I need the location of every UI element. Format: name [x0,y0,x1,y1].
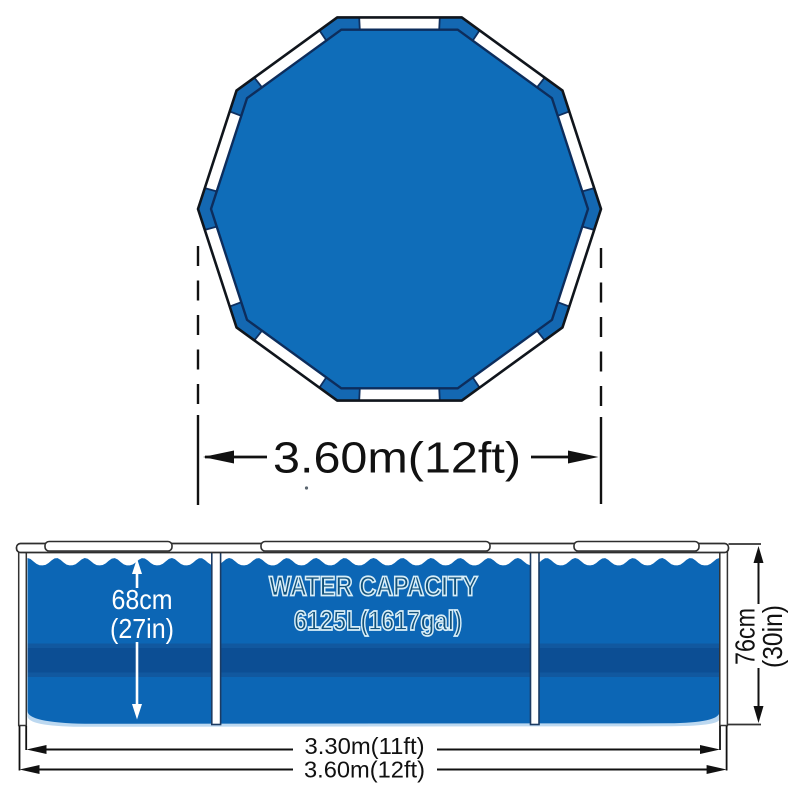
svg-text:68cm: 68cm [112,584,173,615]
svg-text:3.60m(12ft): 3.60m(12ft) [273,435,521,483]
svg-text:3.30m(11ft): 3.30m(11ft) [305,733,425,759]
svg-text:3.60m(12ft): 3.60m(12ft) [304,757,425,783]
svg-text:(27in): (27in) [110,613,174,644]
svg-text:76cm: 76cm [730,608,761,665]
svg-text:(30in): (30in) [757,605,788,668]
svg-text:6125L(1617gal): 6125L(1617gal) [294,605,462,636]
svg-text:WATER CAPACITY: WATER CAPACITY [269,571,478,602]
